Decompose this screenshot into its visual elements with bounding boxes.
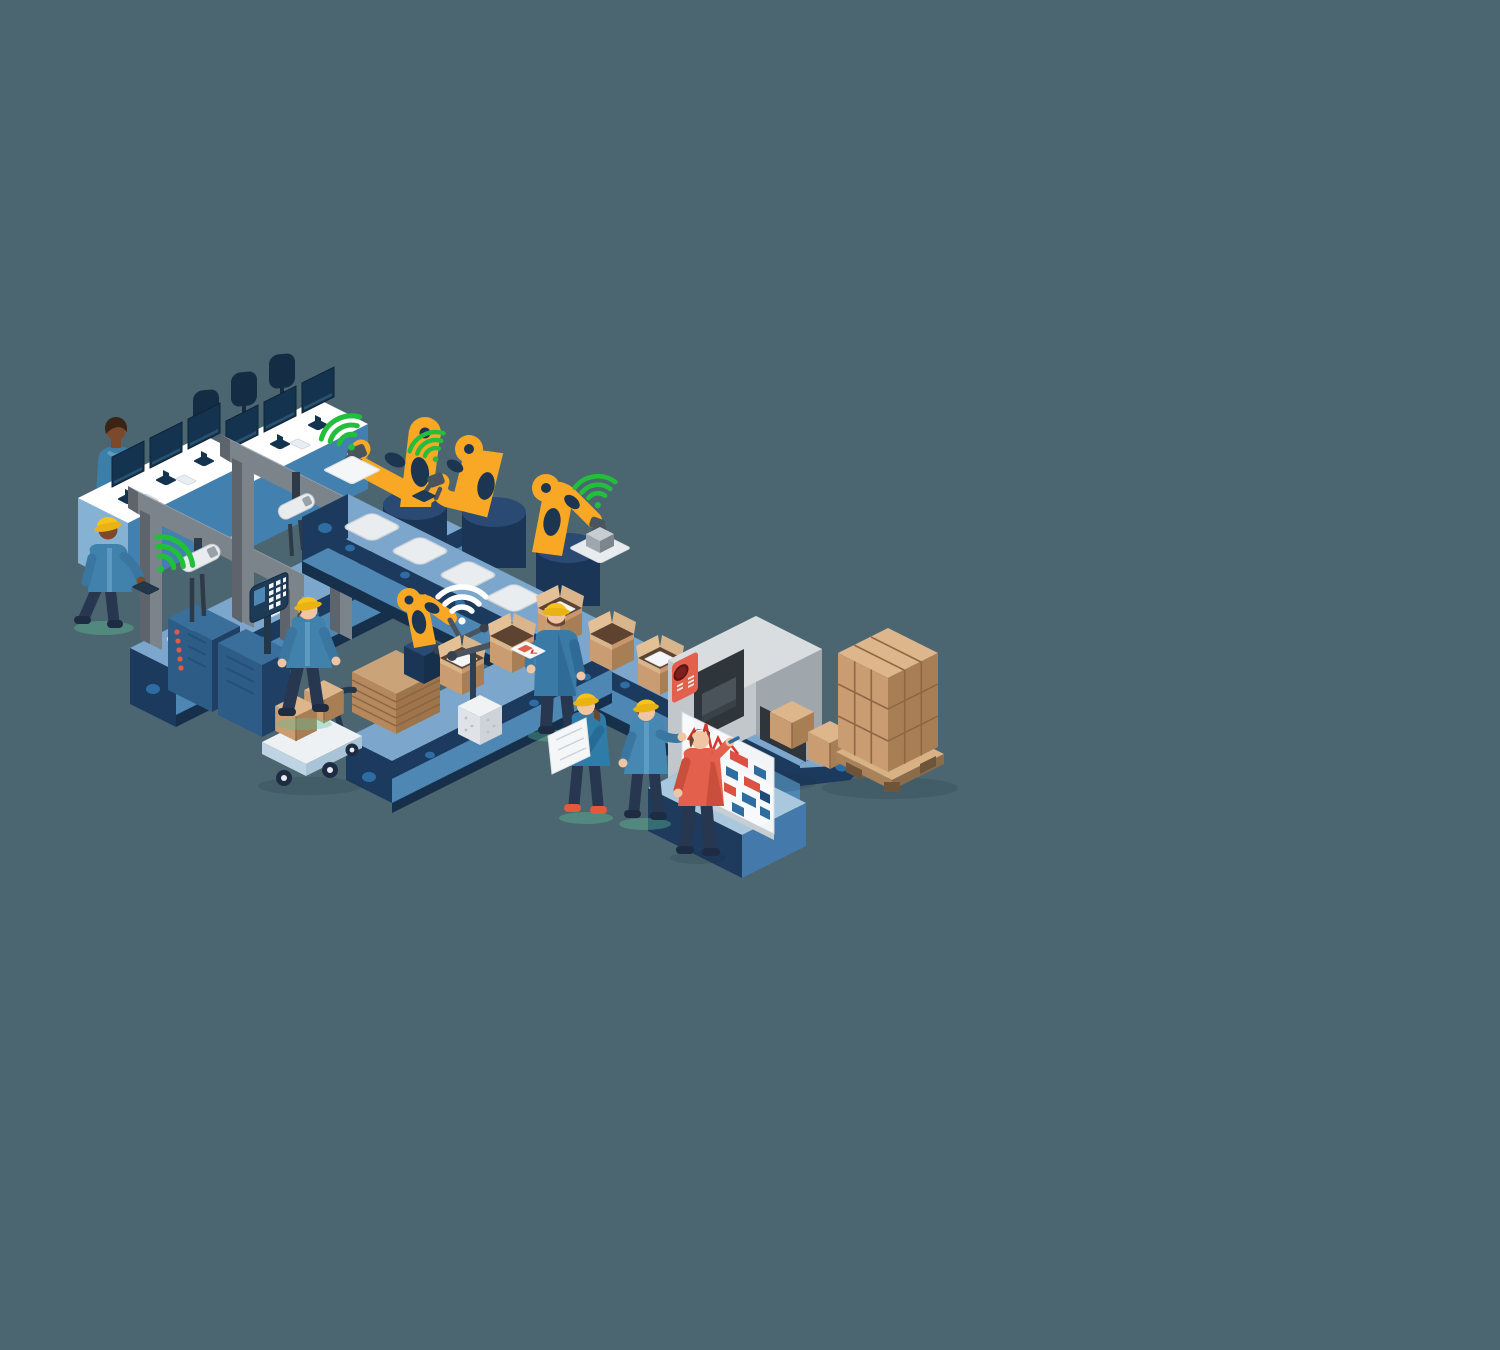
smart-factory-illustration [0,0,1500,1350]
factory-illustration-canvas [0,0,1500,1350]
